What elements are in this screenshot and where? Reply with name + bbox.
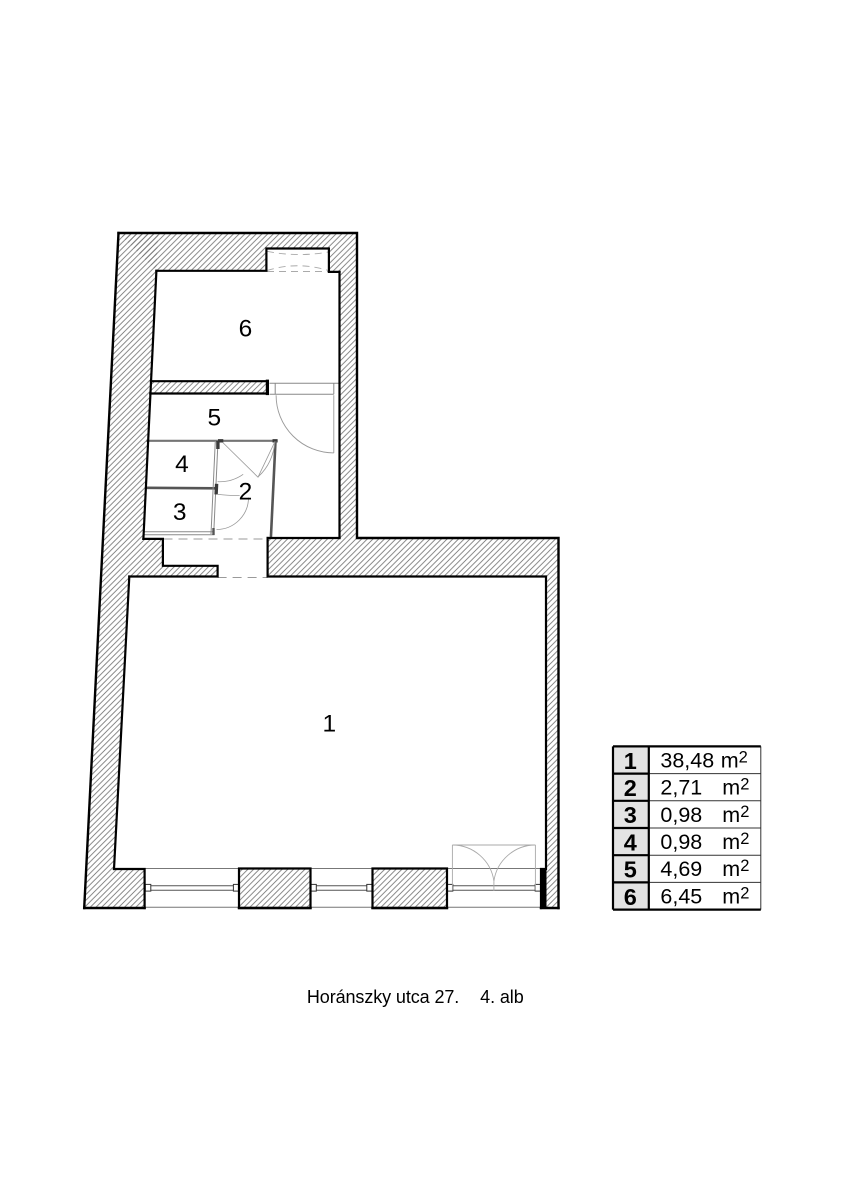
svg-text:6: 6 (624, 884, 637, 910)
svg-text:6: 6 (239, 315, 253, 342)
svg-text:1: 1 (624, 748, 637, 774)
svg-text:2: 2 (239, 478, 253, 505)
svg-text:0,98: 0,98 (660, 830, 702, 854)
svg-text:2: 2 (624, 775, 637, 801)
svg-text:3: 3 (624, 802, 637, 828)
svg-text:Horánszky utca 27.4. alb: Horánszky utca 27.4. alb (307, 987, 524, 1007)
svg-text:38,48: 38,48 (660, 748, 714, 772)
svg-text:5: 5 (207, 405, 221, 432)
svg-text:2,71: 2,71 (660, 776, 702, 800)
svg-text:4: 4 (175, 451, 189, 478)
svg-text:4,69: 4,69 (660, 857, 702, 881)
svg-text:3: 3 (173, 499, 187, 526)
svg-text:1: 1 (322, 711, 336, 738)
svg-text:0,98: 0,98 (660, 803, 702, 827)
svg-text:5: 5 (624, 857, 637, 883)
svg-text:6,45: 6,45 (660, 884, 702, 908)
svg-text:4: 4 (624, 829, 637, 855)
